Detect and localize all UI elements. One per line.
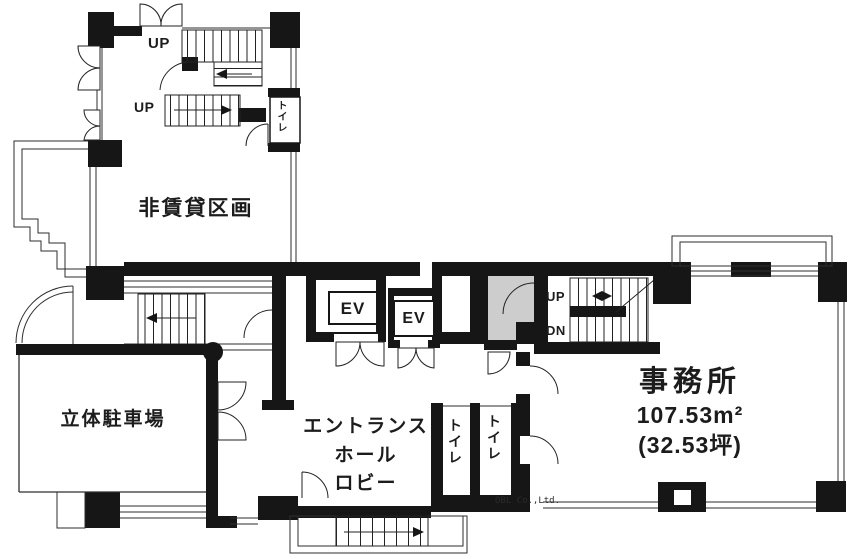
site-outline-left: [14, 141, 90, 277]
double-door-left-lower: [84, 110, 100, 140]
stair-up-label-2: UP: [134, 100, 154, 114]
room-label-toilet-upper: トイレ: [275, 100, 285, 142]
double-door-parking: [218, 382, 246, 440]
stair-up-label-3: UP: [546, 290, 565, 303]
room-label-toilet-1: トイレ: [448, 418, 462, 498]
office-area-tsubo: (32.53坪): [600, 434, 780, 457]
office-area-sqm: 107.53m²: [600, 404, 780, 427]
double-door-top: [140, 4, 182, 26]
double-door-left-upper: [78, 46, 100, 90]
room-label-office: 事務所: [600, 368, 780, 397]
stair-down-label: DN: [546, 324, 566, 337]
duct-space: [432, 262, 488, 344]
room-label-entrance-line2: ホール: [294, 446, 438, 465]
room-label-entrance-line3: ロビー: [294, 474, 438, 493]
corridor-stairs: [124, 281, 272, 350]
elevator-2-label: EV: [393, 300, 435, 337]
gate-swing-arc: [16, 286, 73, 344]
upper-staircase: [160, 30, 262, 90]
floor-plan: 非賃貸区画 立体駐車場 エントランス ホール ロビー 事務所 107.53m² …: [0, 0, 859, 559]
room-label-toilet-2: トイレ: [487, 414, 501, 494]
stair-up-label-1: UP: [148, 36, 170, 51]
room-label-parking: 立体駐車場: [30, 410, 196, 429]
elevator-1-label: EV: [328, 291, 378, 325]
room-label-non-rental: 非賃貸区画: [106, 198, 286, 219]
parking-walls: [16, 344, 237, 528]
office-doors: [530, 366, 558, 464]
watermark: OBL Co.,Ltd.: [495, 497, 560, 506]
room-label-entrance-line1: エントランス: [294, 417, 438, 436]
